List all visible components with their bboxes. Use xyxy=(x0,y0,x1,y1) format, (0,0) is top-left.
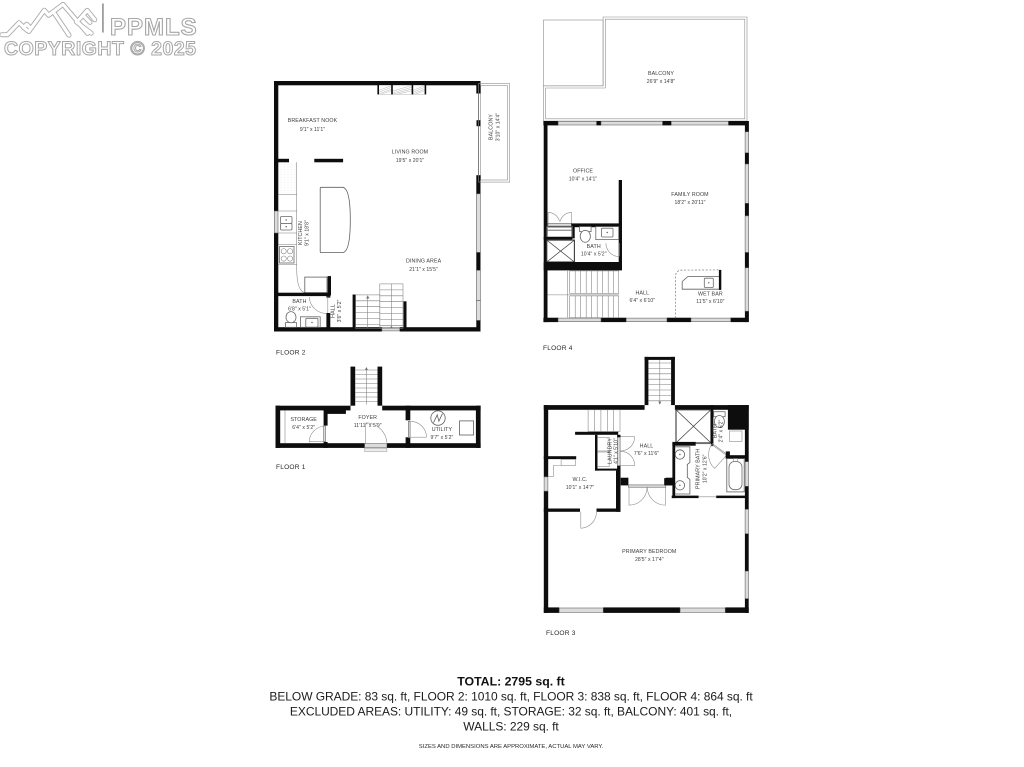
svg-text:28'5" x 17'4": 28'5" x 17'4" xyxy=(635,557,664,563)
svg-text:FLOOR 3: FLOOR 3 xyxy=(546,630,576,637)
svg-text:OFFICE: OFFICE xyxy=(573,169,593,175)
svg-text:PRIMARY BEDROOM: PRIMARY BEDROOM xyxy=(622,549,676,555)
svg-text:11'11" x 5'9": 11'11" x 5'9" xyxy=(354,423,382,429)
svg-text:4'1" x 5'10": 4'1" x 5'10" xyxy=(613,438,619,464)
svg-text:FLOOR 2: FLOOR 2 xyxy=(276,350,306,357)
svg-text:COPYRIGHT © 2025: COPYRIGHT © 2025 xyxy=(4,38,197,60)
svg-text:BATH: BATH xyxy=(292,299,306,305)
svg-text:9'1" x 18'8": 9'1" x 18'8" xyxy=(305,220,311,246)
svg-text:HALL: HALL xyxy=(635,291,649,297)
svg-text:SIZES AND DIMENSIONS ARE APPRO: SIZES AND DIMENSIONS ARE APPROXIMATE, AC… xyxy=(419,744,604,750)
svg-text:EXCLUDED AREAS: UTILITY: 49 sq: EXCLUDED AREAS: UTILITY: 49 sq. ft, STOR… xyxy=(290,705,732,719)
svg-text:PRIMARY BATH: PRIMARY BATH xyxy=(696,449,702,489)
svg-text:6'4" x 6'10": 6'4" x 6'10" xyxy=(629,298,655,304)
svg-text:26'9" x 14'8": 26'9" x 14'8" xyxy=(647,79,676,85)
svg-text:TOTAL: 2795 sq. ft: TOTAL: 2795 sq. ft xyxy=(457,675,565,689)
svg-text:FAMILY ROOM: FAMILY ROOM xyxy=(671,192,708,198)
svg-text:PPMLS: PPMLS xyxy=(110,14,198,41)
svg-text:W.I.C.: W.I.C. xyxy=(572,477,587,483)
svg-text:BELOW GRADE: 83 sq. ft, FLOOR: BELOW GRADE: 83 sq. ft, FLOOR 2: 1010 sq… xyxy=(269,690,753,704)
svg-text:BALCONY: BALCONY xyxy=(489,114,495,140)
svg-text:11'5" x 6'10": 11'5" x 6'10" xyxy=(696,299,724,305)
svg-text:FLOOR 1: FLOOR 1 xyxy=(276,464,306,471)
svg-text:WALLS: 229 sq. ft: WALLS: 229 sq. ft xyxy=(463,720,559,734)
svg-text:DINING AREA: DINING AREA xyxy=(406,259,442,265)
svg-text:9'7" x 5'2": 9'7" x 5'2" xyxy=(430,435,453,441)
svg-text:10'2" x 12'6": 10'2" x 12'6" xyxy=(703,454,709,483)
svg-text:FOYER: FOYER xyxy=(358,415,377,421)
svg-text:10'1" x 14'7": 10'1" x 14'7" xyxy=(566,485,595,491)
svg-text:HALL: HALL xyxy=(331,304,337,318)
svg-text:KITCHEN: KITCHEN xyxy=(298,221,304,245)
svg-text:FLOOR 4: FLOOR 4 xyxy=(543,345,573,352)
svg-text:6'4" x 5'2": 6'4" x 5'2" xyxy=(292,425,315,431)
svg-text:STORAGE: STORAGE xyxy=(290,417,317,423)
svg-text:3'6" x 5'2": 3'6" x 5'2" xyxy=(337,299,343,322)
svg-text:9'1" x 11'1": 9'1" x 11'1" xyxy=(300,127,325,133)
svg-text:2'4" x 6'2": 2'4" x 6'2" xyxy=(718,419,724,442)
svg-text:LIVING ROOM: LIVING ROOM xyxy=(392,150,428,156)
svg-text:BALCONY: BALCONY xyxy=(648,71,674,77)
svg-text:BREAKFAST NOOK: BREAKFAST NOOK xyxy=(288,118,338,124)
svg-text:HALL: HALL xyxy=(640,444,654,450)
svg-text:19'5" x 20'1": 19'5" x 20'1" xyxy=(396,158,425,164)
svg-text:10'4" x 5'2": 10'4" x 5'2" xyxy=(581,252,607,258)
svg-text:18'2" x 20'11": 18'2" x 20'11" xyxy=(674,200,705,206)
svg-text:UTILITY: UTILITY xyxy=(432,427,453,433)
svg-text:10'4" x 14'1": 10'4" x 14'1" xyxy=(569,177,598,183)
svg-text:3'10" x 14'4": 3'10" x 14'4" xyxy=(496,113,502,142)
svg-text:WET BAR: WET BAR xyxy=(698,292,723,298)
svg-text:7'6" x 11'6": 7'6" x 11'6" xyxy=(634,451,659,457)
svg-text:BATH: BATH xyxy=(587,244,601,250)
svg-text:21'1" x 15'5": 21'1" x 15'5" xyxy=(409,267,438,273)
